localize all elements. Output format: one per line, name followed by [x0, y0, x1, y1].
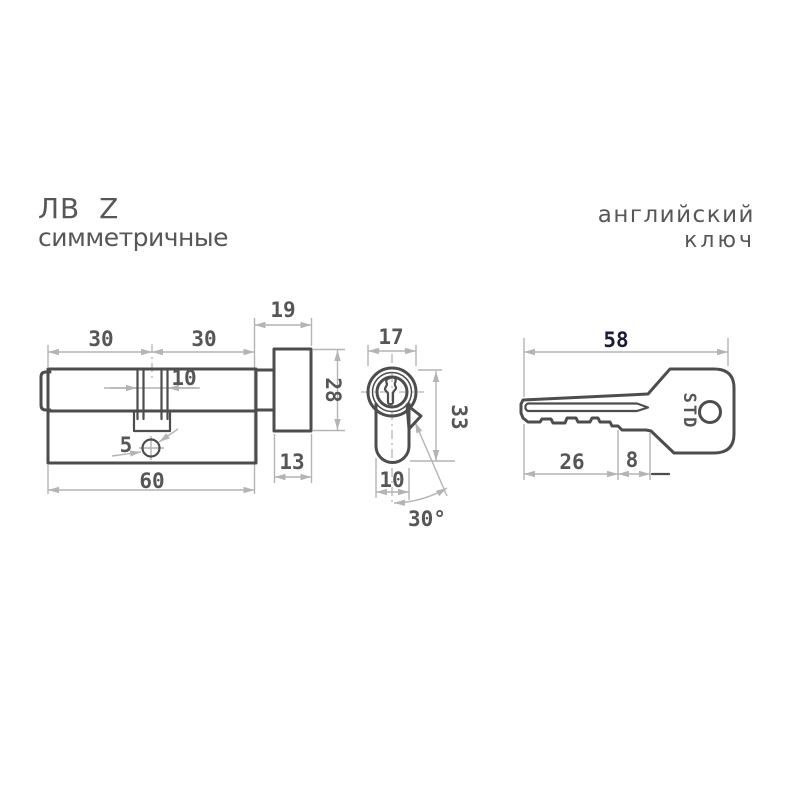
dim-5: 5	[120, 433, 133, 457]
dim-33: 33	[447, 404, 471, 429]
dim-8: 8	[626, 448, 639, 472]
key-view: STD 58 26 8	[521, 328, 734, 480]
dim-60: 60	[139, 469, 164, 493]
mounting-slot-outline	[134, 411, 170, 431]
dim-17: 17	[378, 325, 403, 349]
dim-10-front: 10	[379, 468, 404, 492]
front-view: 17 33 10 30°	[361, 325, 471, 531]
dim-30-left: 30	[88, 327, 113, 351]
angle-leader-line	[415, 422, 447, 496]
blade-groove	[525, 404, 648, 412]
key-ring-hole	[700, 402, 721, 423]
dim-10: 10	[171, 366, 196, 390]
key-brand-text: STD	[679, 393, 699, 430]
side-view: 30 30 19 10 5 60 13 28	[41, 298, 345, 494]
dim-13: 13	[279, 450, 304, 474]
dim-26: 26	[559, 450, 584, 474]
thumbturn-knob-outline	[274, 349, 311, 431]
dim-19: 19	[270, 298, 295, 322]
technical-drawing: 30 30 19 10 5 60 13 28 17 3	[0, 0, 800, 800]
keyway-profile	[385, 377, 396, 404]
cylinder-body-outline	[48, 369, 256, 463]
dim-30deg: 30°	[408, 507, 446, 531]
dim-30-right: 30	[191, 327, 216, 351]
dim-58: 58	[603, 328, 628, 352]
dim-28: 28	[321, 377, 345, 402]
